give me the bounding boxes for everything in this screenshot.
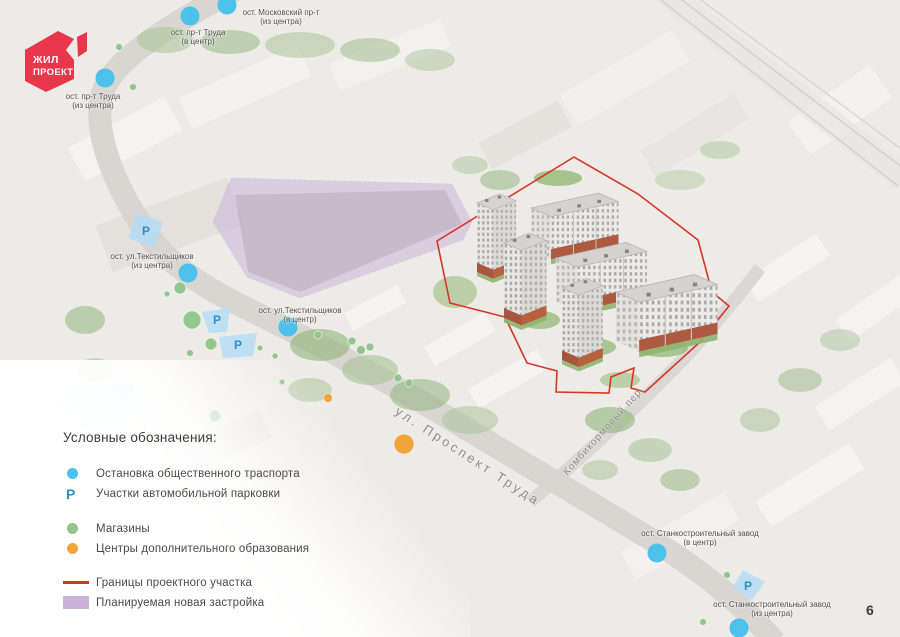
parking-letter: P <box>142 224 150 238</box>
boundary-symbol <box>63 581 89 584</box>
shop-dot <box>700 619 707 626</box>
legend-label-education: Центры дополнительного образования <box>96 543 309 555</box>
shop-dot <box>724 572 731 579</box>
legend-marker-transit <box>63 468 89 479</box>
bus-stop-dot <box>96 69 115 88</box>
shop-dot <box>394 374 402 382</box>
logo-text-line1: ЖИЛ <box>32 54 59 66</box>
legend-items: Остановка общественного траспортаPУчастк… <box>63 466 433 610</box>
shop-dot <box>257 345 263 351</box>
buildings-render <box>477 193 718 371</box>
legend-label-development: Планируемая новая застройка <box>96 597 264 609</box>
development-symbol <box>63 596 89 609</box>
parking-letter: P <box>744 579 752 593</box>
legend-label-transit: Остановка общественного траспорта <box>96 468 300 480</box>
logo-shape-chevron <box>77 32 87 57</box>
parking-letter: P <box>234 338 242 352</box>
bus-stop-dot <box>179 264 198 283</box>
shop-dot <box>174 282 186 294</box>
page: PPPPP ост. Московский пр-т(из центра)ост… <box>0 0 900 637</box>
bus-stop-dot <box>181 7 200 26</box>
bus-stop-dot <box>730 619 749 637</box>
parking-letter: P <box>84 394 92 408</box>
shop-dot <box>366 343 374 351</box>
education-symbol <box>67 543 78 554</box>
shop-dot <box>405 379 413 387</box>
parking-letter: P <box>213 313 221 327</box>
legend-marker-education <box>63 543 89 554</box>
shop-dot <box>279 379 285 385</box>
legend-label-boundary: Границы проектного участка <box>96 577 252 589</box>
shop-dot <box>183 311 201 329</box>
shop-dot <box>209 410 221 422</box>
legend: Условные обозначения: Остановка обществе… <box>63 430 433 615</box>
bus-stop-dot <box>218 0 237 15</box>
legend-marker-parking: P <box>63 486 89 502</box>
legend-item-shops: Магазины <box>63 521 433 536</box>
legend-marker-boundary <box>63 581 89 584</box>
shop-dot <box>314 331 322 339</box>
page-number: 6 <box>866 602 874 618</box>
legend-marker-shops <box>63 523 89 534</box>
legend-item-education: Центры дополнительного образования <box>63 541 433 556</box>
legend-label-parking: Участки автомобильной парковки <box>96 488 280 500</box>
logo: ЖИЛ ПРОЕКТ <box>22 26 88 96</box>
parking-area <box>55 381 135 425</box>
legend-item-transit: Остановка общественного траспорта <box>63 466 433 481</box>
legend-marker-development <box>63 596 89 609</box>
education-dot <box>324 394 333 403</box>
legend-label-shops: Магазины <box>96 523 150 535</box>
shop-dot <box>205 338 217 350</box>
bus-stop-dot <box>279 318 298 337</box>
logo-text-line2: ПРОЕКТ <box>33 67 73 78</box>
shop-dot <box>348 337 356 345</box>
legend-item-development: Планируемая новая застройка <box>63 595 433 610</box>
shop-dot <box>130 84 137 91</box>
planned-development-area <box>213 178 472 298</box>
transit-symbol <box>67 468 78 479</box>
shops-symbol <box>67 523 78 534</box>
legend-title: Условные обозначения: <box>63 430 433 445</box>
legend-item-boundary: Границы проектного участка <box>63 575 433 590</box>
shop-dot <box>164 291 170 297</box>
shop-dot <box>272 353 278 359</box>
bus-stop-dot <box>648 544 667 563</box>
shop-dot <box>116 44 123 51</box>
shop-dot <box>187 350 194 357</box>
parking-symbol: P <box>66 486 75 502</box>
legend-item-parking: PУчастки автомобильной парковки <box>63 486 433 502</box>
shop-dot <box>357 346 366 355</box>
